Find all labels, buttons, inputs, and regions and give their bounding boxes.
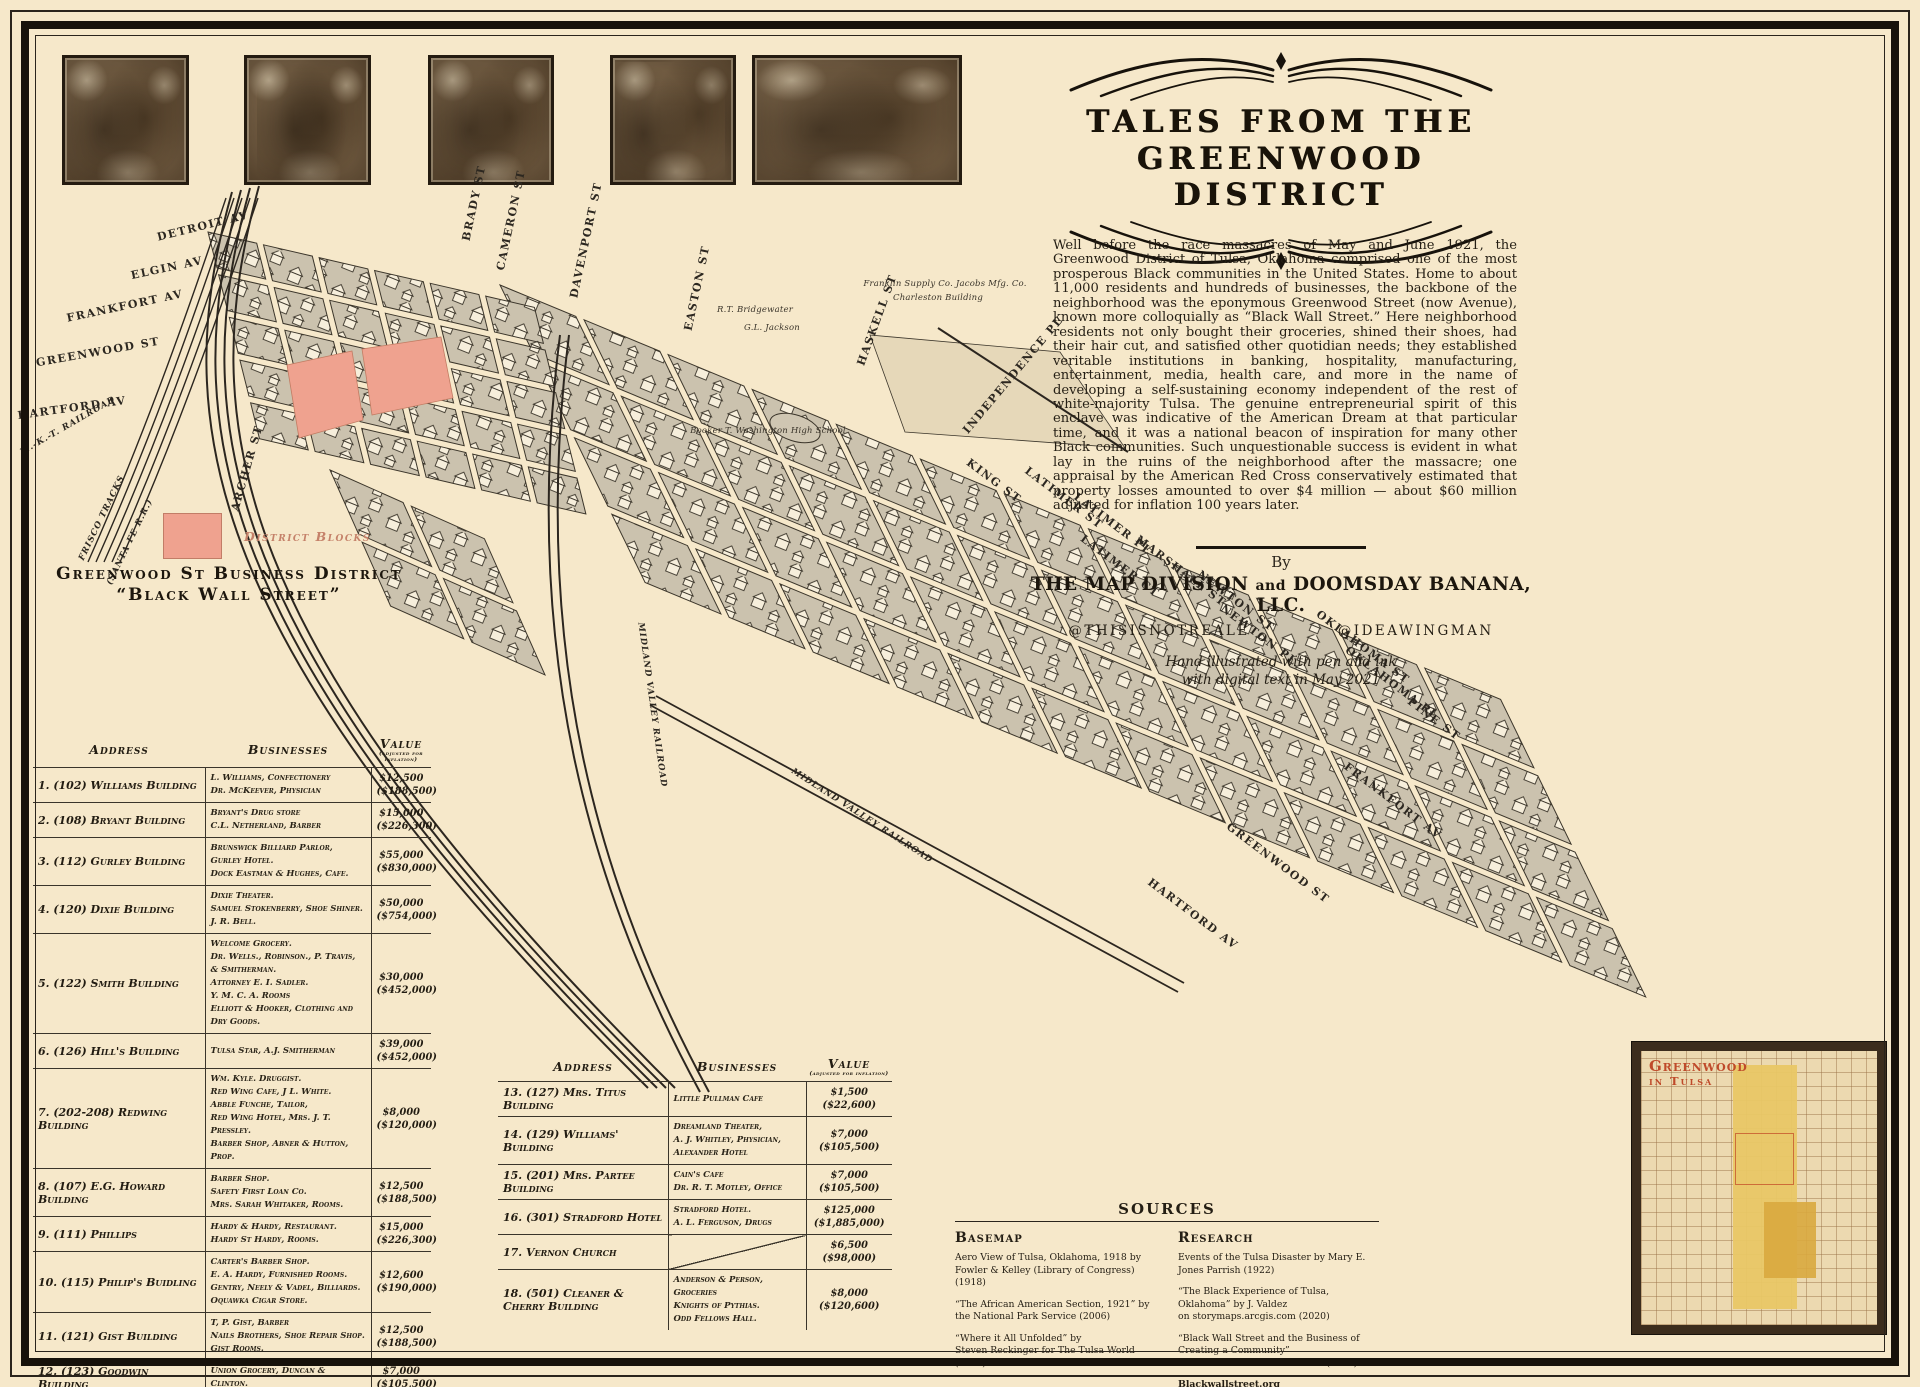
table-row: 2. (108) Bryant BuildingBryant's Drug st… <box>33 803 431 838</box>
value-cell: $12,600($190,000) <box>371 1252 431 1313</box>
address-cell: 14. (129) Williams' Building <box>498 1117 668 1165</box>
byline-label: By <box>1030 553 1532 571</box>
address-cell: 4. (120) Dixie Building <box>33 886 205 934</box>
address-cell: 9. (111) Phillips <box>33 1217 205 1252</box>
value-cell: $15,000($226,300) <box>371 803 431 838</box>
business-table-1: Address Businesses Value (adjusted for i… <box>33 732 431 1387</box>
building-label: R.T. Bridgewater <box>717 305 793 315</box>
table-row: 12. (123) Goodwin BuildingUnion Grocery,… <box>33 1361 431 1387</box>
table-row: 13. (127) Mrs. Titus BuildingLittle Pull… <box>498 1082 892 1117</box>
basemap-heading: Basemap <box>955 1230 1156 1246</box>
address-cell: 16. (301) Stradford Hotel <box>498 1200 668 1235</box>
businesses-cell: Brunswick Billiard Parlor, Gurley Hotel.… <box>205 838 371 886</box>
table-row: 16. (301) Stradford HotelStradford Hotel… <box>498 1200 892 1235</box>
address-cell: 17. Vernon Church <box>498 1235 668 1270</box>
page-title-line2: Greenwood District <box>1030 141 1532 214</box>
building-label: Franklin Supply Co. Jacobs Mfg. Co. <box>863 279 1026 289</box>
page-title-line1: Tales From the <box>1030 104 1532 141</box>
value-cell: $50,000($754,000) <box>371 886 431 934</box>
table-row: 9. (111) PhillipsHardy & Hardy, Restaura… <box>33 1217 431 1252</box>
address-cell: 15. (201) Mrs. Partee Building <box>498 1165 668 1200</box>
source-entry: Aero View of Tulsa, Oklahoma, 1918 by Fo… <box>955 1252 1156 1290</box>
address-cell: 12. (123) Goodwin Building <box>33 1361 205 1387</box>
value-cell: $39,000($452,000) <box>371 1034 431 1069</box>
table-row: 6. (126) Hill's BuildingTulsa Star, A.J.… <box>33 1034 431 1069</box>
inset-map: Greenwood in Tulsa <box>1641 1051 1877 1325</box>
table-row: 7. (202-208) Redwing BuildingWm. Kyle. D… <box>33 1069 431 1169</box>
value-cell: $7,000($105,500) <box>371 1361 431 1387</box>
value-cell: $12,500($188,500) <box>371 768 431 803</box>
businesses-cell: L. Williams, Confectionery Dr. McKeever,… <box>205 768 371 803</box>
businesses-cell: Stradford Hotel. A. L. Ferguson, Drugs <box>668 1200 806 1235</box>
intro-paragraph: Well before the race massacres of May an… <box>1053 239 1517 514</box>
building-label: Booker T. Washington High School <box>690 426 846 436</box>
businesses-cell: Tulsa Star, A.J. Smitherman <box>205 1034 371 1069</box>
businesses-cell: Wm. Kyle. Druggist. Red Wing Cafe, J L. … <box>205 1069 371 1169</box>
source-entry: “The African American Section, 1921” by … <box>955 1299 1156 1324</box>
table-row: 15. (201) Mrs. Partee BuildingCain's Caf… <box>498 1165 892 1200</box>
address-cell: 11. (121) Gist Building <box>33 1313 205 1361</box>
social-handles: @THISISNOTREALE @IDEAWINGMAN <box>1030 623 1532 639</box>
businesses-cell: Anderson & Person, Groceries Knights of … <box>668 1270 806 1331</box>
value-cell: $8,000($120,000) <box>371 1069 431 1169</box>
source-entry: Blackwallstreet.org <box>1178 1379 1379 1387</box>
col-header-address: Address <box>33 732 205 768</box>
sources-basemap-column: Basemap Aero View of Tulsa, Oklahoma, 19… <box>955 1230 1156 1387</box>
businesses-cell: Welcome Grocery. Dr. Wells., Robinson., … <box>205 934 371 1034</box>
address-cell: 2. (108) Bryant Building <box>33 803 205 838</box>
businesses-cell: Cain's Cafe Dr. R. T. Motley, Office <box>668 1165 806 1200</box>
business-table-title: Greenwood St Business District “Black Wa… <box>33 564 425 607</box>
source-entry: Events of the Tulsa Disaster by Mary E. … <box>1178 1252 1379 1277</box>
byline-part2: Doomsday Banana, LLC. <box>1257 574 1532 616</box>
table-row: 1. (102) Williams BuildingL. Williams, C… <box>33 768 431 803</box>
byline: The Map Division and Doomsday Banana, LL… <box>1030 574 1532 616</box>
businesses-cell: Carter's Barber Shop. E. A. Hardy, Furni… <box>205 1252 371 1313</box>
inset-map-frame: Greenwood in Tulsa <box>1632 1042 1886 1334</box>
value-cell: $55,000($830,000) <box>371 838 431 886</box>
table-row: 14. (129) Williams' BuildingDreamland Th… <box>498 1117 892 1165</box>
inset-highlight-area-dark <box>1764 1202 1816 1279</box>
byline-part1: The Map Division <box>1031 574 1249 595</box>
table-row: 5. (122) Smith BuildingWelcome Grocery. … <box>33 934 431 1034</box>
value-cell: $7,000($105,500) <box>806 1117 892 1165</box>
sources-research-column: Research Events of the Tulsa Disaster by… <box>1178 1230 1379 1387</box>
research-heading: Research <box>1178 1230 1379 1246</box>
legend-label: District Blocks <box>244 529 371 544</box>
legend-swatch <box>163 513 222 559</box>
byline-rule <box>1196 546 1366 549</box>
byline-and: and <box>1255 578 1286 594</box>
businesses-cell: Little Pullman Cafe <box>668 1082 806 1117</box>
sources-section: Sources Basemap Aero View of Tulsa, Okla… <box>955 1200 1379 1387</box>
table-row: 11. (121) Gist BuildingT, P. Gist, Barbe… <box>33 1313 431 1361</box>
col-header-value: Value (adjusted for inflation) <box>371 732 431 768</box>
diamond-ornament <box>1276 52 1286 70</box>
greenwood-map-poster: Tales From the Greenwood District Well b… <box>0 0 1920 1387</box>
table-row: 17. Vernon Church$6,500($98,000) <box>498 1235 892 1270</box>
handle-right: @IDEAWINGMAN <box>1338 623 1494 639</box>
table-row: 10. (115) Philip's BuidlingCarter's Barb… <box>33 1252 431 1313</box>
businesses-cell <box>668 1235 806 1270</box>
credit-note: Hand illustrated with pen and ink with d… <box>1030 653 1532 689</box>
table-row: 3. (112) Gurley BuildingBrunswick Billia… <box>33 838 431 886</box>
address-cell: 6. (126) Hill's Building <box>33 1034 205 1069</box>
flourish-top-ornament <box>1061 48 1501 104</box>
value-cell: $6,500($98,000) <box>806 1235 892 1270</box>
businesses-cell: Barber Shop. Safety First Loan Co. Mrs. … <box>205 1169 371 1217</box>
col-header-businesses: Businesses <box>205 732 371 768</box>
handle-left: @THISISNOTREALE <box>1068 623 1249 639</box>
value-note: (adjusted for inflation) <box>373 751 429 763</box>
source-entry: “Where it All Unfolded” by Steven Reckin… <box>955 1333 1156 1371</box>
credits-block: By The Map Division and Doomsday Banana,… <box>1030 546 1532 689</box>
building-label: Charleston Building <box>893 293 983 303</box>
business-table-2: Address Businesses Value (adjusted for i… <box>498 1052 892 1330</box>
table-row: 18. (501) Cleaner & Cherry BuildingAnder… <box>498 1270 892 1331</box>
source-entry: “The Black Experience of Tulsa, Oklahoma… <box>1178 1286 1379 1324</box>
businesses-cell: Union Grocery, Duncan & Clinton. <box>205 1361 371 1387</box>
table-row: 8. (107) E.G. Howard BuildingBarber Shop… <box>33 1169 431 1217</box>
value-cell: $1,500($22,600) <box>806 1082 892 1117</box>
value-cell: $7,000($105,500) <box>806 1165 892 1200</box>
address-cell: 7. (202-208) Redwing Building <box>33 1069 205 1169</box>
table-row: 4. (120) Dixie BuildingDixie Theater. Sa… <box>33 886 431 934</box>
sources-title: Sources <box>955 1200 1379 1222</box>
col-header-address: Address <box>498 1052 668 1082</box>
col-header-value: Value (adjusted for inflation) <box>806 1052 892 1082</box>
col-header-businesses: Businesses <box>668 1052 806 1082</box>
address-cell: 18. (501) Cleaner & Cherry Building <box>498 1270 668 1331</box>
address-cell: 10. (115) Philip's Buidling <box>33 1252 205 1313</box>
address-cell: 5. (122) Smith Building <box>33 934 205 1034</box>
businesses-cell: Hardy & Hardy, Restaurant. Hardy St Hard… <box>205 1217 371 1252</box>
value-cell: $12,500($188,500) <box>371 1313 431 1361</box>
value-cell: $15,000($226,300) <box>371 1217 431 1252</box>
address-cell: 13. (127) Mrs. Titus Building <box>498 1082 668 1117</box>
businesses-cell: T, P. Gist, Barber Nails Brothers, Shoe … <box>205 1313 371 1361</box>
value-cell: $30,000($452,000) <box>371 934 431 1034</box>
value-cell: $125,000($1,885,000) <box>806 1200 892 1235</box>
address-cell: 3. (112) Gurley Building <box>33 838 205 886</box>
inset-extent-box <box>1735 1133 1794 1184</box>
businesses-cell: Dreamland Theater, A. J. Whitley, Physic… <box>668 1117 806 1165</box>
value-cell: $8,000($120,600) <box>806 1270 892 1331</box>
businesses-cell: Bryant's Drug store C.L. Netherland, Bar… <box>205 803 371 838</box>
source-entry: “Black Wall Street and the Business of C… <box>1178 1333 1379 1371</box>
value-note: (adjusted for inflation) <box>808 1071 890 1077</box>
inset-title: Greenwood in Tulsa <box>1649 1057 1748 1089</box>
businesses-cell: Dixie Theater. Samuel Stokenberry, Shoe … <box>205 886 371 934</box>
building-label: G.L. Jackson <box>744 323 800 333</box>
address-cell: 8. (107) E.G. Howard Building <box>33 1169 205 1217</box>
value-cell: $12,500($188,500) <box>371 1169 431 1217</box>
address-cell: 1. (102) Williams Building <box>33 768 205 803</box>
legend: District Blocks <box>163 513 371 559</box>
